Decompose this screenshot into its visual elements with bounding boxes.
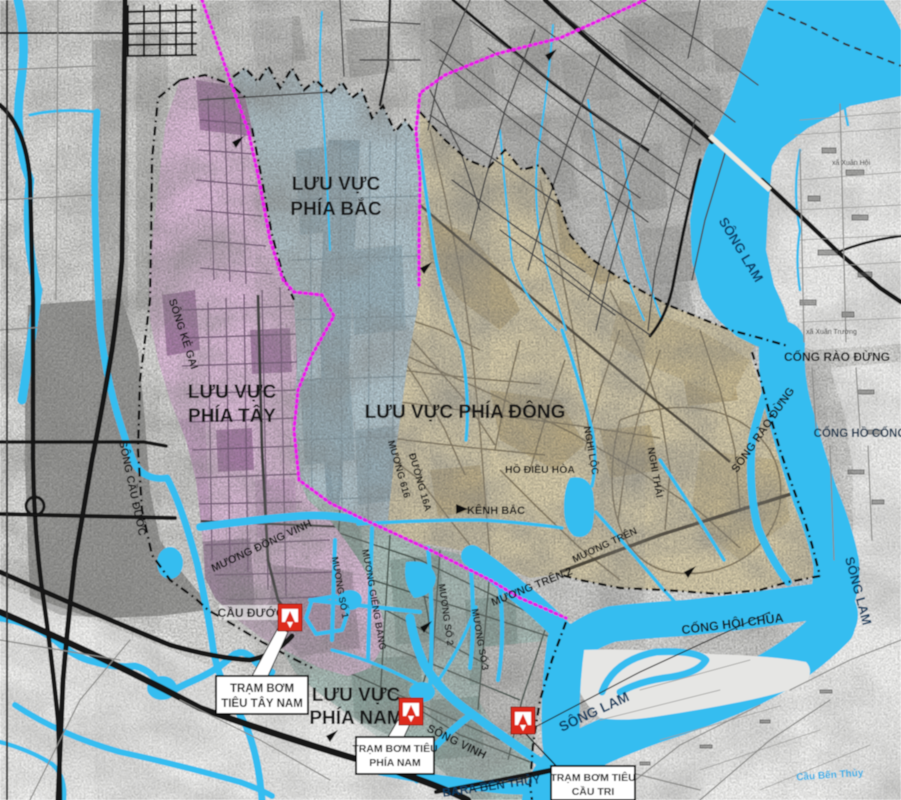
svg-text:LƯU VỰC: LƯU VỰC: [312, 685, 401, 706]
svg-text:xã Xuân Hội: xã Xuân Hội: [832, 160, 871, 167]
svg-text:TRẠM BƠM TIÊU: TRẠM BƠM TIÊU: [352, 742, 437, 755]
svg-text:PHÍA TÂY: PHÍA TÂY: [188, 405, 276, 427]
svg-text:PHÍA NAM: PHÍA NAM: [309, 707, 402, 729]
svg-text:CẦU ĐƯỚC: CẦU ĐƯỚC: [218, 605, 285, 620]
svg-text:KÊNH BẮC: KÊNH BẮC: [467, 504, 525, 517]
svg-text:LƯU VỰC: LƯU VỰC: [292, 174, 381, 195]
svg-text:LƯU VỰC PHÍA ĐÔNG: LƯU VỰC PHÍA ĐÔNG: [365, 401, 566, 423]
svg-text:PHÍA NAM: PHÍA NAM: [369, 756, 421, 769]
svg-text:CẦU TRI: CẦU TRI: [572, 785, 615, 798]
svg-text:LƯU VỰC: LƯU VỰC: [188, 382, 277, 403]
svg-text:CỐNG HỒ CỔNG: CỐNG HỒ CỔNG: [814, 426, 901, 440]
svg-text:xã Xuân Trường: xã Xuân Trường: [806, 329, 857, 336]
svg-text:CỐNG RÀO ĐỪNG: CỐNG RÀO ĐỪNG: [784, 349, 890, 364]
svg-text:TIÊU TÂY NAM: TIÊU TÂY NAM: [221, 697, 303, 710]
svg-text:HỒ ĐIỀU HÒA: HỒ ĐIỀU HÒA: [505, 463, 575, 476]
svg-text:PHÍA BẮC: PHÍA BẮC: [290, 198, 381, 220]
svg-text:TRẠM BƠM TIÊU: TRẠM BƠM TIÊU: [550, 771, 635, 784]
svg-text:TRẠM BƠM: TRẠM BƠM: [230, 683, 294, 695]
